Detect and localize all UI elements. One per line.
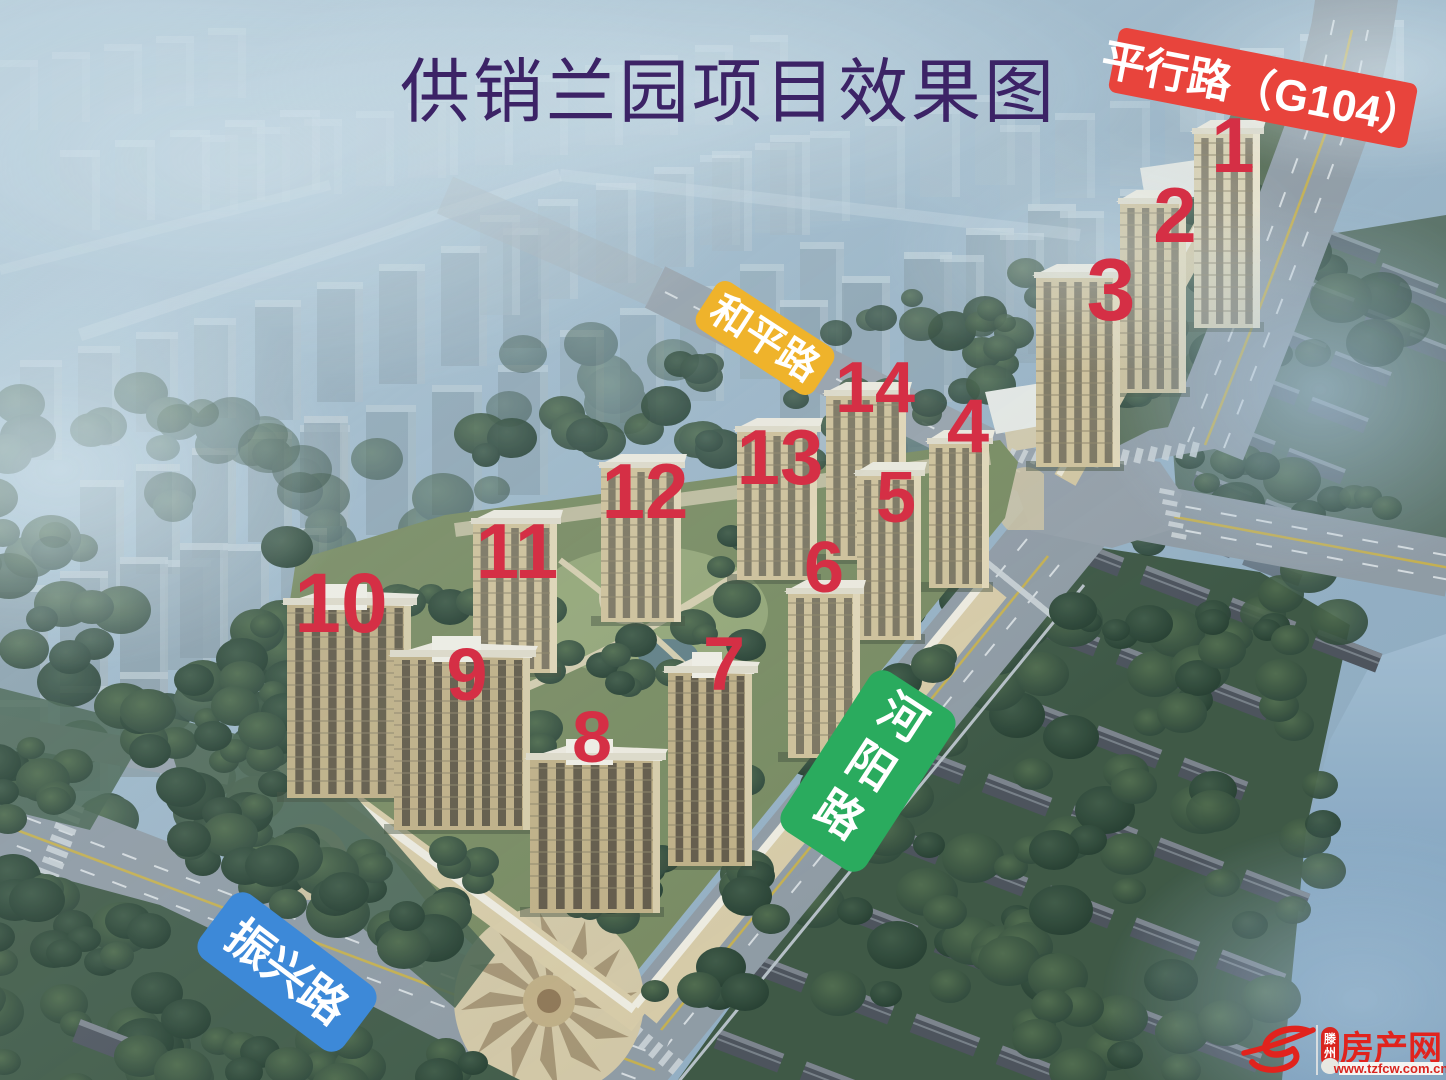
svg-text:2: 2: [1153, 171, 1196, 259]
svg-text:14: 14: [835, 348, 915, 428]
svg-text:滕: 滕: [1324, 1031, 1337, 1046]
svg-text:4: 4: [947, 384, 989, 469]
svg-text:8: 8: [572, 698, 612, 778]
svg-text:1: 1: [1211, 101, 1254, 189]
svg-text:州: 州: [1323, 1046, 1336, 1060]
svg-text:www.tzfcw.com.cn: www.tzfcw.com.cn: [1333, 1061, 1446, 1076]
svg-text:6: 6: [804, 528, 844, 608]
svg-text:10: 10: [294, 556, 387, 650]
svg-text:12: 12: [602, 447, 689, 535]
svg-text:供销兰园项目效果图: 供销兰园项目效果图: [400, 53, 1057, 131]
svg-text:3: 3: [1087, 240, 1136, 339]
svg-text:11: 11: [476, 507, 558, 595]
svg-text:9: 9: [446, 633, 487, 716]
svg-text:5: 5: [876, 458, 916, 538]
svg-text:7: 7: [703, 622, 745, 707]
svg-text:13: 13: [737, 413, 824, 501]
